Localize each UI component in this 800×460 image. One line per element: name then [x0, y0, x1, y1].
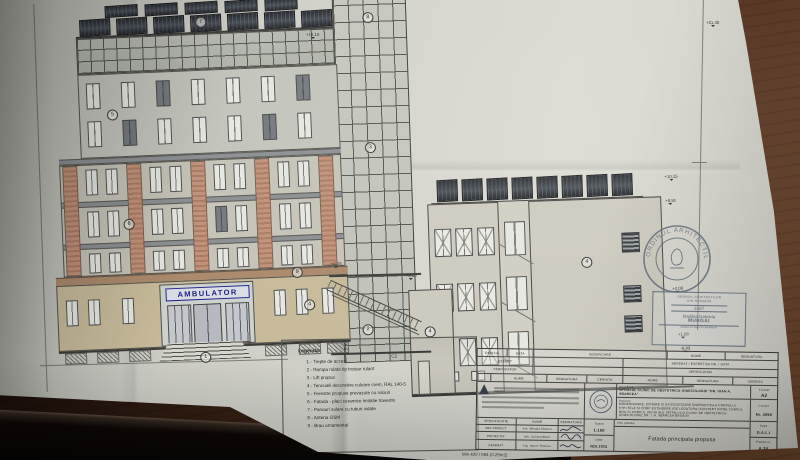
base-hatch [129, 350, 151, 362]
window [88, 299, 101, 325]
window [217, 248, 230, 268]
data-cell: Data NOI.2015 [584, 435, 613, 450]
solar-panel [184, 1, 217, 15]
entrance-sidelight [167, 304, 193, 345]
window [85, 169, 98, 195]
plansa-cell: Plansa nr. A.34 [750, 438, 776, 453]
solar-panel [79, 18, 111, 37]
base-hatch [65, 353, 87, 365]
solar-panel [144, 2, 177, 16]
canopy-line [329, 273, 421, 277]
elevation-value: +8.91 [665, 198, 676, 203]
window [261, 76, 276, 103]
legend-box: Legenda: 1 - Trepte de acces2 - Rampa ru… [281, 336, 479, 453]
window [156, 80, 171, 107]
callout-1: 1 [200, 352, 211, 363]
window [479, 282, 497, 311]
faza-value: D.A.L.I [757, 430, 770, 434]
col-cerinta2: CERINTA [733, 377, 777, 385]
ambulator-sign: AMBULATOR [165, 285, 249, 302]
window [149, 167, 162, 193]
window [281, 245, 294, 265]
col-semnatura2: SEMNATURA [547, 375, 587, 383]
format-label: Format [759, 387, 770, 391]
window [171, 208, 184, 234]
window [192, 117, 207, 144]
window [477, 227, 495, 256]
window [299, 202, 312, 228]
nume-header: NUME [517, 418, 559, 425]
spec-header: SPECIFICATIE [477, 418, 517, 425]
data-label: Data [595, 438, 602, 442]
scara-label: Scara [595, 421, 604, 425]
scara-cell: Scara 1:100 [585, 419, 614, 435]
elevation-value: +4.05 [331, 261, 342, 266]
row-role: SEF PROIECT [477, 425, 517, 432]
entrance-door [193, 303, 223, 344]
entrance-portal: AMBULATOR [159, 281, 256, 347]
firm-stamp-cell [585, 384, 617, 419]
paper-size-note: Min 420 / 594 (0.25m2) [462, 452, 507, 458]
window [86, 83, 101, 110]
entrance-sidelight [225, 302, 251, 343]
empty-cell [533, 366, 623, 375]
stamp-emblem [670, 249, 684, 268]
proiect-nr-value: Nr. 4098 [756, 412, 772, 416]
window [297, 160, 310, 186]
semnatura-header: SEMNATURA [559, 419, 584, 425]
window [107, 210, 120, 236]
elevation-mark-tower-mid: +16.10 [306, 32, 319, 41]
row-signature [558, 441, 583, 450]
window [434, 229, 452, 258]
window [153, 250, 166, 270]
window [455, 228, 473, 257]
window [66, 300, 79, 326]
window [237, 247, 250, 267]
row-role: PROIECTAT [476, 432, 516, 439]
format-cell: Format A2 [751, 386, 777, 399]
row-name: Arh. Cristea Bibut [516, 433, 558, 440]
row-verificator: VERIFICATOR [477, 366, 533, 374]
window [457, 283, 475, 312]
col-nume3: NUME [623, 376, 683, 384]
title-block: REVIZIA DATA MODIFICARE NUME SEMNATURA E… [475, 348, 778, 454]
firm-info-cell [477, 382, 585, 418]
row-expert: EXPERT [477, 357, 533, 365]
window [301, 244, 314, 264]
elevation-value: +16.10 [306, 32, 319, 37]
stamp-name-line2: MURGAI [653, 318, 745, 325]
format-value: A2 [761, 393, 767, 398]
louvre-window [623, 285, 642, 303]
row-role: DESENAT [476, 440, 516, 450]
beneficiar-value: SPITALUL CLINIC DE OBSTETRICA-GINECOLOGI… [619, 389, 748, 399]
elevation-mark-right-up: +8.91 [665, 198, 676, 207]
solar-panel [153, 15, 185, 34]
firm-round-stamp [587, 388, 613, 414]
window [215, 206, 228, 232]
window [173, 250, 186, 270]
legend-items: 1 - Trepte de acces2 - Rampa rulata tip … [306, 355, 477, 430]
faza-cell: Faza D.A.L.I [751, 422, 777, 438]
window [213, 164, 226, 190]
callout-8: 8 [362, 12, 373, 23]
col-semnatura3: SEMNATURA [683, 377, 733, 385]
window [226, 77, 241, 104]
proiect-value: MODERNIZARE, DOTARE SI EFICIENTIZARE ENE… [619, 403, 748, 419]
main-facade-elevation: AMBULATOR 7 5 6 9 4 1 [45, 0, 352, 370]
empty-cell [477, 374, 491, 382]
window [296, 74, 311, 101]
col-data: DATA [508, 349, 534, 357]
data-value: NOI.2015 [590, 444, 607, 448]
col-semnatura: SEMNATURA [726, 352, 778, 360]
window [274, 289, 287, 315]
row-signature [558, 433, 583, 440]
elevation-value: +21.40 [706, 20, 719, 25]
stamp-org: ORDINUL ARHITECTILOR DIN ROMANIA [653, 292, 745, 304]
elevation-value: +10.15 [664, 174, 677, 179]
window [235, 205, 248, 231]
round-architect-stamp: ORDINUL ARHITECTILOR DIN ROMANIA [640, 222, 714, 296]
brick-pilaster [190, 161, 210, 272]
window [87, 121, 102, 148]
elevation-mark-connector: +4.05 [331, 261, 342, 270]
window [122, 298, 135, 324]
window [169, 166, 182, 192]
proiect-nr-label: Proiect [759, 404, 770, 408]
base-hatch [97, 351, 119, 363]
brick-pilaster [254, 158, 274, 269]
col-nume2: NUME [491, 374, 547, 382]
firm-logo-icon [479, 384, 489, 394]
window [121, 82, 136, 109]
svg-text:ORDINUL ARHITECTILOR DIN ROMAN: ORDINUL ARHITECTILOR DIN ROMANIA [640, 222, 709, 260]
window [157, 118, 172, 145]
window [89, 253, 102, 273]
photo-of-architectural-drawing: AMBULATOR 7 5 6 9 4 1 8 3 +16.10 +21.40 [0, 0, 800, 460]
faza-label: Faza [760, 424, 768, 428]
proiect-nr-cell: Proiect Nr. 4098 [751, 400, 777, 421]
col-cerinta: CERINTA [587, 375, 623, 383]
row-name: Arh. Mihaila Monica [517, 425, 559, 432]
callout-2: 2 [362, 324, 373, 335]
titlu-value: Fatada principala propusa [614, 427, 749, 453]
stamp-org-line2: DIN ROMANIA [653, 298, 745, 304]
firm-text-line [482, 401, 579, 404]
stamp-role: arhitect cu drept de semnatura [659, 324, 739, 329]
scara-value: 1:100 [593, 427, 604, 432]
stamp-arc-text: ORDINUL ARHITECTILOR DIN ROMANIA [640, 222, 709, 260]
brick-pilaster [62, 166, 82, 277]
window [279, 203, 292, 229]
louvre-window [621, 232, 640, 253]
col-nume: NUME [668, 352, 726, 360]
solar-panel [224, 0, 257, 13]
elevation-mark-right-top: +10.15 [664, 174, 678, 183]
firm-text-line [482, 406, 544, 409]
callout-3: 3 [365, 142, 376, 153]
legend-item: 9 - Brau ornamental [307, 420, 477, 431]
plansa-label: Plansa nr. [756, 440, 771, 444]
plansa-value: A.34 [758, 446, 768, 451]
window [262, 114, 277, 141]
row-name: Ing. Iepure Monica [516, 440, 558, 450]
louvre-window [624, 315, 643, 333]
rect-architect-stamp: ORDINUL ARHITECTILOR DIN ROMANIA 3187 Ma… [652, 291, 747, 347]
brick-pilaster [318, 155, 338, 266]
window [227, 115, 242, 142]
stamp-number: 3187 [671, 304, 727, 312]
solar-panel [104, 4, 137, 18]
firm-text-line [494, 390, 579, 393]
solar-panel [116, 17, 148, 36]
drawing-sheet: AMBULATOR 7 5 6 9 4 1 8 3 +16.10 +21.40 [0, 0, 800, 460]
legend-title: Legenda: [298, 345, 476, 354]
brick-floors-wall [59, 154, 345, 278]
empty-cell [533, 358, 623, 367]
solar-panel [264, 10, 296, 29]
window [109, 252, 122, 272]
window [87, 211, 100, 237]
row-signature [559, 426, 584, 433]
window [105, 168, 118, 194]
elevation-mark-tower-top: +21.40 [706, 20, 719, 29]
solar-panel [301, 9, 333, 28]
window [191, 79, 206, 106]
ambulator-sign-text: AMBULATOR [177, 287, 238, 299]
col-revizia: REVIZIA [478, 349, 508, 357]
window [151, 208, 164, 234]
window [277, 161, 290, 187]
firm-text-line [482, 396, 579, 399]
window [297, 112, 312, 139]
solar-panel [227, 12, 259, 31]
titlu-label: Titlu plansa: [617, 421, 636, 425]
window [233, 163, 246, 189]
window [122, 120, 137, 147]
